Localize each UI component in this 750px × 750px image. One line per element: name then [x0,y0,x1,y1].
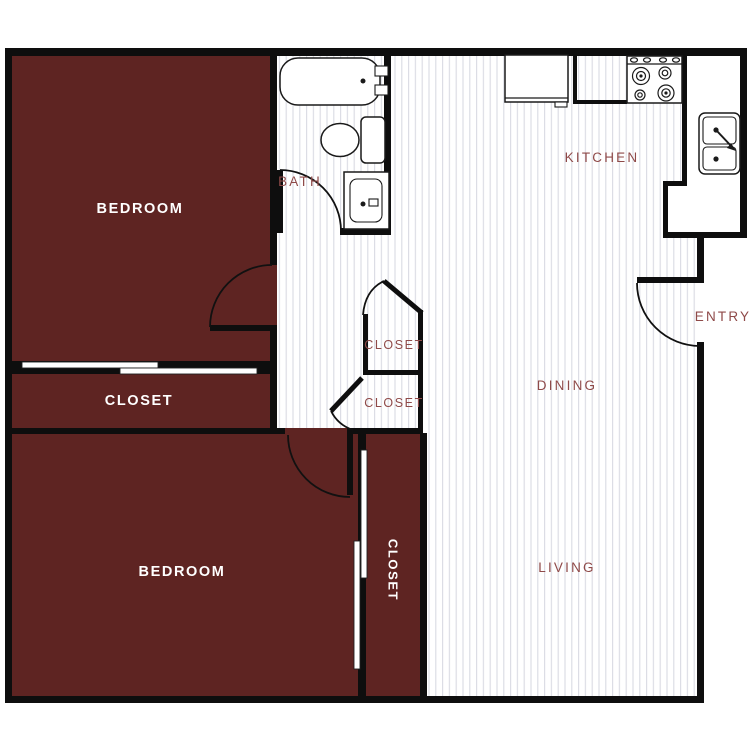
wall-bedroom2-closet-east [420,433,427,696]
wall-outer-left [5,48,12,703]
bedroom2-door-leaf [347,433,353,495]
bathtub-tap-hot [375,66,388,76]
toilet-bowl [321,124,359,157]
hall-closet-upper-label: CLOSET [364,338,424,352]
bedroom-1-closet-label: CLOSET [105,393,173,409]
counter-fridge-right [573,56,577,104]
wall-bedroom1-east-lower [270,325,277,428]
wall-outer-top [5,48,747,56]
bathtub-tap-cold [375,85,388,95]
bedroom2-closet-slider-upper [361,450,367,578]
kitchen-sink-basin-bottom [703,147,736,170]
kitchen-label: KITCHEN [565,150,640,165]
hall-closet-lower-label: CLOSET [364,396,424,410]
bath-sink-faucet [369,199,378,206]
bath-sink-icon [344,172,389,229]
refrigerator-handle [555,102,567,107]
stove-burner-4-center [664,91,667,94]
living-label: LIVING [538,560,595,575]
bath-sink-drain [361,202,366,207]
stove-icon [627,56,682,103]
wall-right-below-entry-door [697,342,704,696]
bath-label: BATH [278,174,322,189]
refrigerator-body [505,55,568,102]
bedroom1-closet-slider-left [22,362,158,368]
refrigerator-icon [505,55,568,107]
kitchen-sink-drain-bottom [713,156,718,161]
dining-label: DINING [537,378,597,393]
wall-right-above-entry-door [697,238,704,283]
bedroom1-closet-slider-right [120,368,257,374]
floor-plan-page: BEDROOM CLOSET BEDROOM CLOSET BATH KITCH… [0,0,750,750]
counter-below-fridge [573,100,627,104]
bedroom2-closet-slider-lower [354,541,360,669]
wall-bedroom1-east-upper [270,56,277,265]
wall-outer-bottom [5,696,704,703]
entry-label: ENTRY [695,309,750,324]
kitchen-sink-icon [699,113,740,174]
bedroom-2-closet-label: CLOSET [386,539,401,601]
counter-sink-left [663,186,668,232]
wall-outer-right-upper [740,48,747,238]
wall-entry-step [663,232,747,238]
floor-plan: BEDROOM CLOSET BEDROOM CLOSET BATH KITCH… [0,0,750,750]
kitchen-counter-nook [666,186,742,232]
bathtub-drain [361,79,366,84]
bedroom1-door-leaf [210,325,272,331]
stove-burner-1-center [639,74,642,77]
bathtub-icon [280,58,388,105]
wall-hall-closet-divider [363,370,423,375]
bedroom-2-label: BEDROOM [139,564,226,580]
wall-bedroom2-north-west [12,428,285,434]
toilet-tank [361,117,385,163]
entry-door-leaf [637,277,704,283]
bedroom-1-label: BEDROOM [97,201,184,217]
kitchen-sink-basin-top [703,117,736,144]
dining-living-floor [391,232,697,696]
counter-sink-top [663,181,687,186]
